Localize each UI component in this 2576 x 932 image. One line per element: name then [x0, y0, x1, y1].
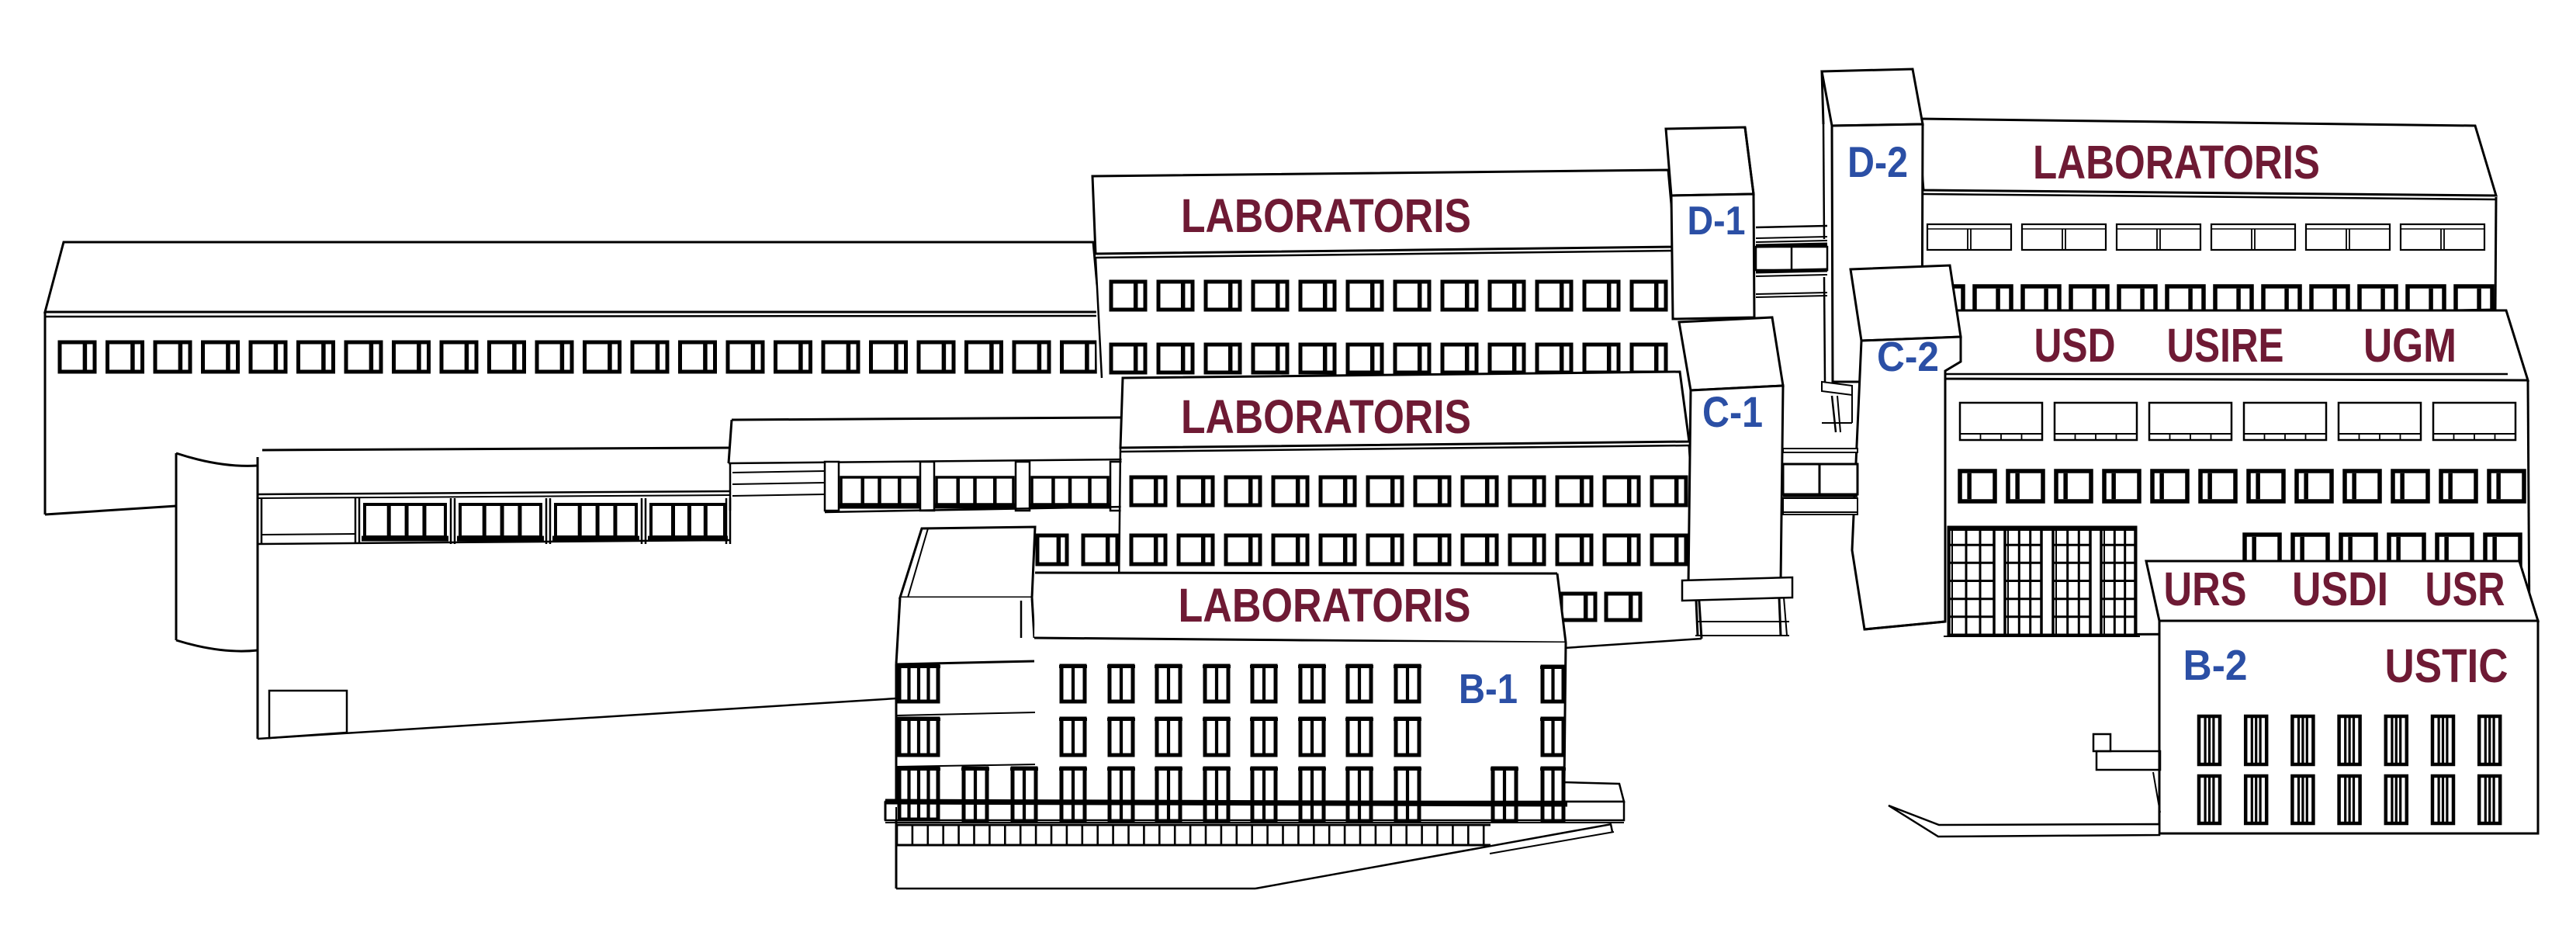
svg-text:USIRE: USIRE [2167, 319, 2284, 372]
svg-text:LABORATORIS: LABORATORIS [1181, 189, 1471, 242]
svg-text:USD: USD [2034, 319, 2116, 372]
svg-text:LABORATORIS: LABORATORIS [1179, 579, 1471, 632]
svg-text:UGM: UGM [2363, 319, 2457, 372]
svg-text:LABORATORIS: LABORATORIS [1181, 390, 1471, 443]
svg-text:C-2: C-2 [1877, 334, 1939, 380]
svg-text:USR: USR [2425, 563, 2505, 615]
svg-text:D-2: D-2 [1847, 137, 1908, 186]
svg-text:URS: URS [2164, 563, 2247, 615]
svg-text:LABORATORIS: LABORATORIS [2033, 136, 2320, 189]
svg-text:B-2: B-2 [2183, 641, 2248, 689]
svg-text:B-1: B-1 [1459, 666, 1518, 712]
svg-text:D-1: D-1 [1688, 199, 1746, 244]
svg-text:C-1: C-1 [1702, 387, 1763, 436]
svg-text:USTIC: USTIC [2385, 639, 2508, 692]
svg-text:USDI: USDI [2292, 563, 2388, 615]
